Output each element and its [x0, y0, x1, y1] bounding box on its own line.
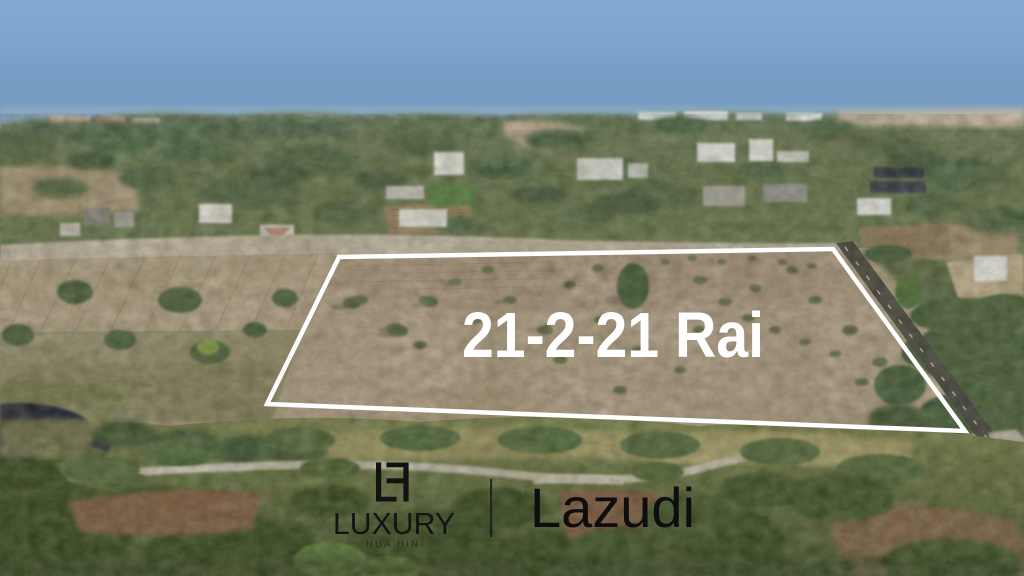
svg-text:LUXURY: LUXURY	[333, 506, 455, 541]
svg-text:Lazudi: Lazudi	[530, 476, 695, 539]
svg-text:21-2-21 Rai: 21-2-21 Rai	[462, 299, 764, 371]
svg-text:HUA HIN: HUA HIN	[366, 539, 420, 550]
